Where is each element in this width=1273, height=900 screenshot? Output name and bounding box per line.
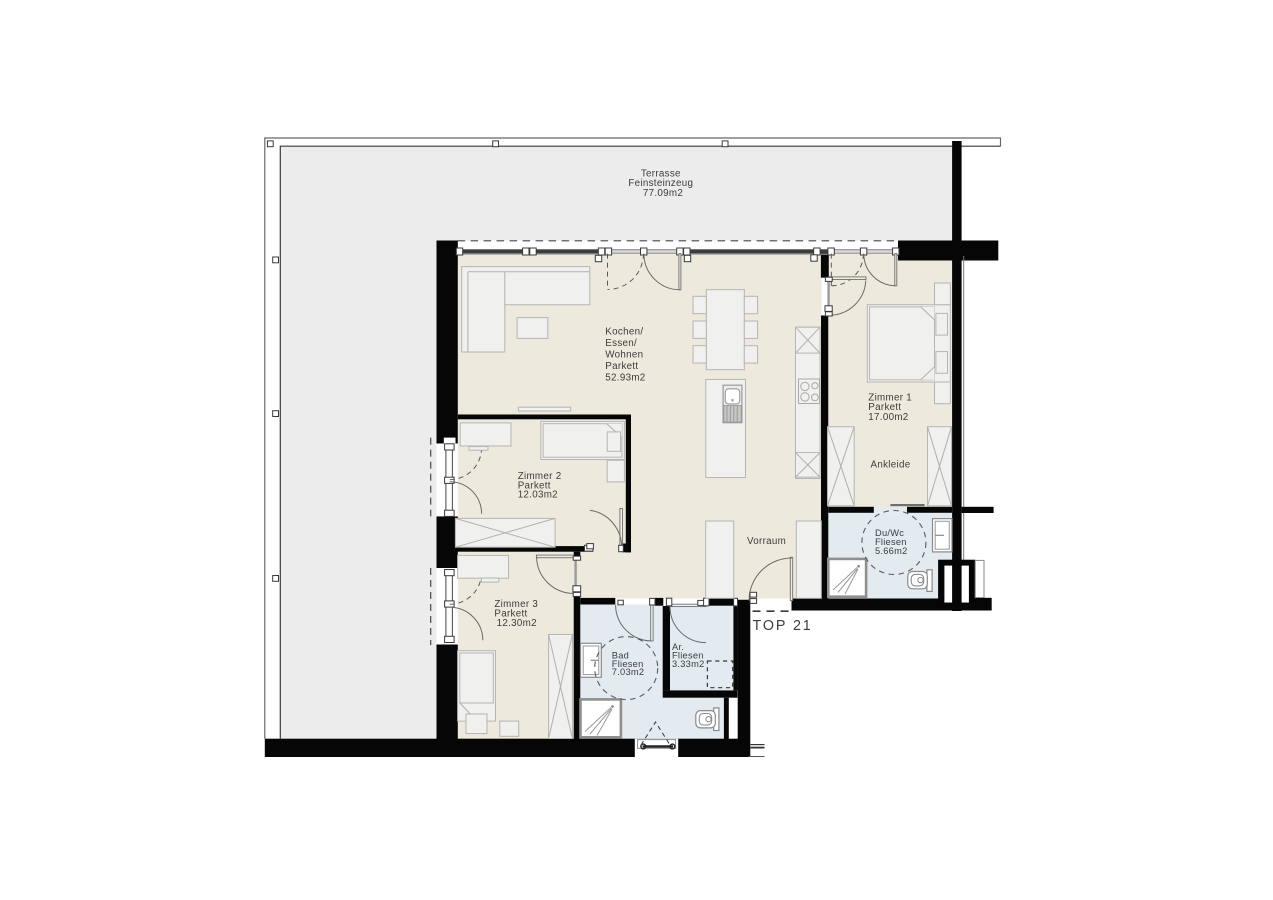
svg-text:Parkett: Parkett — [605, 361, 638, 372]
svg-text:12.03m2: 12.03m2 — [518, 490, 558, 501]
svg-text:Ankleide: Ankleide — [871, 459, 911, 470]
svg-text:Essen/: Essen/ — [605, 338, 637, 349]
svg-text:3.33m2: 3.33m2 — [672, 659, 705, 669]
svg-text:TOP 21: TOP 21 — [753, 618, 813, 634]
svg-text:7.03m2: 7.03m2 — [612, 667, 645, 677]
svg-text:52.93m2: 52.93m2 — [605, 373, 645, 384]
svg-text:12.30m2: 12.30m2 — [497, 618, 537, 629]
svg-text:Kochen/: Kochen/ — [605, 327, 643, 338]
svg-text:77.09m2: 77.09m2 — [643, 188, 683, 199]
svg-text:Wohnen: Wohnen — [605, 350, 643, 361]
svg-text:Vorraum: Vorraum — [747, 536, 786, 547]
svg-text:5.66m2: 5.66m2 — [875, 546, 908, 556]
svg-text:17.00m2: 17.00m2 — [868, 412, 908, 423]
